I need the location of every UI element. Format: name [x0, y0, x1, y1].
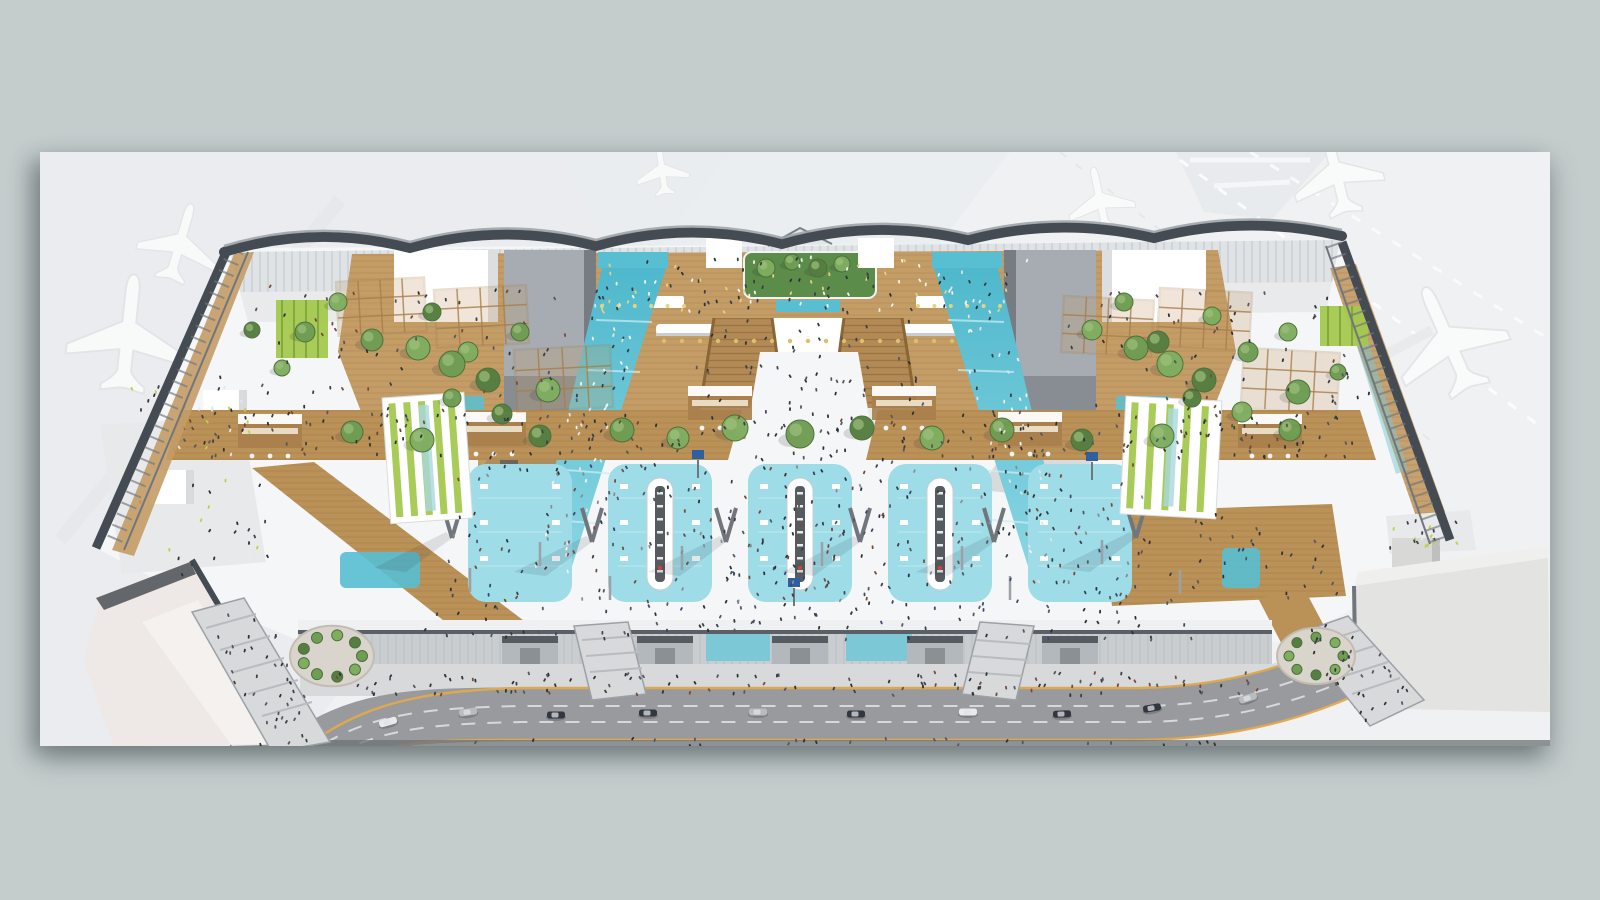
- person: [905, 603, 907, 607]
- person: [954, 565, 956, 569]
- person: [1181, 449, 1183, 453]
- person: [1184, 434, 1186, 438]
- person: [661, 443, 663, 447]
- car: [748, 709, 768, 719]
- person: [605, 497, 607, 501]
- green-roof-pavilion: [1120, 396, 1222, 519]
- landside-facade: [298, 620, 1272, 670]
- person: [376, 453, 378, 457]
- person: [789, 401, 791, 405]
- person: [286, 678, 288, 682]
- person: [1080, 694, 1082, 698]
- person: [772, 274, 774, 278]
- person: [215, 454, 217, 458]
- person: [1001, 431, 1003, 435]
- person: [223, 448, 225, 452]
- person: [852, 486, 854, 490]
- kiosk-pod: [1112, 520, 1120, 525]
- person: [1100, 691, 1102, 695]
- person: [684, 509, 686, 513]
- person: [934, 607, 936, 611]
- person: [843, 591, 845, 595]
- person: [1070, 495, 1072, 499]
- person: [995, 447, 997, 451]
- person: [879, 308, 881, 312]
- person: [248, 541, 250, 545]
- cafe-stool: [878, 339, 882, 343]
- person: [793, 451, 795, 455]
- person: [612, 543, 614, 547]
- person: [872, 285, 874, 289]
- person: [509, 352, 511, 356]
- person: [395, 299, 397, 303]
- kiosk-pod: [620, 520, 628, 525]
- flight-info-screen: [692, 450, 704, 459]
- kiosk-pod: [552, 520, 560, 525]
- person: [1210, 374, 1212, 378]
- person: [566, 514, 568, 518]
- person: [903, 448, 905, 452]
- person: [1206, 434, 1208, 438]
- person: [594, 419, 596, 423]
- cafe-stool: [680, 339, 684, 343]
- person: [278, 341, 280, 345]
- person: [602, 631, 604, 635]
- car: [546, 712, 566, 722]
- cafe-stool: [666, 304, 670, 308]
- person: [229, 651, 231, 655]
- person: [542, 607, 544, 611]
- person: [630, 607, 632, 611]
- person: [476, 540, 478, 544]
- person: [450, 588, 452, 592]
- flight-info-screen: [788, 578, 800, 587]
- person: [516, 682, 518, 686]
- person: [1099, 610, 1101, 614]
- person: [696, 366, 698, 370]
- person: [889, 504, 891, 508]
- person: [981, 495, 983, 499]
- kiosk-pod: [620, 556, 628, 561]
- person: [693, 529, 695, 533]
- person: [789, 407, 791, 411]
- person: [415, 337, 417, 341]
- person: [624, 414, 626, 418]
- person: [798, 264, 800, 268]
- person: [1069, 693, 1071, 697]
- person: [648, 292, 650, 296]
- terminal-building: [84, 219, 1550, 776]
- green-roof-pavilion: [382, 392, 473, 523]
- timber-pergola: [336, 277, 427, 336]
- car: [638, 710, 658, 720]
- timber-pergola: [514, 345, 613, 412]
- person: [1020, 427, 1022, 431]
- person: [1234, 453, 1236, 457]
- person: [844, 448, 846, 452]
- person: [737, 674, 739, 678]
- person: [1027, 424, 1029, 428]
- person: [1022, 426, 1024, 430]
- person: [1268, 444, 1270, 448]
- person: [1183, 683, 1185, 687]
- person: [667, 486, 669, 490]
- person: [753, 280, 755, 284]
- person: [864, 593, 866, 597]
- cafe-stool: [824, 339, 828, 343]
- person: [1348, 655, 1350, 659]
- person: [576, 394, 578, 398]
- person: [1389, 546, 1391, 550]
- person: [1243, 424, 1245, 428]
- person: [402, 437, 404, 441]
- kiosk-pod: [1040, 556, 1048, 561]
- person: [923, 559, 925, 563]
- person: [976, 386, 978, 390]
- person: [1010, 394, 1012, 398]
- cafe-stool: [682, 304, 686, 308]
- person: [1421, 537, 1423, 541]
- kiosk-pod: [480, 556, 488, 561]
- image-viewer-canvas: [0, 0, 1600, 900]
- person: [907, 540, 909, 544]
- person: [699, 278, 701, 282]
- terminal-aerial-rendering: [0, 0, 1600, 900]
- person: [454, 579, 456, 583]
- person: [942, 454, 944, 458]
- person: [1222, 575, 1224, 579]
- person: [1049, 473, 1051, 477]
- person: [724, 530, 726, 534]
- cafe-stool: [788, 339, 792, 343]
- person: [968, 315, 970, 319]
- person: [1259, 532, 1261, 536]
- kiosk-pod: [900, 520, 908, 525]
- person: [851, 417, 853, 421]
- person: [734, 628, 736, 632]
- person: [455, 416, 457, 420]
- person: [1025, 406, 1027, 410]
- kiosk-pod: [972, 520, 980, 525]
- person: [1087, 742, 1089, 746]
- person: [1096, 587, 1098, 591]
- person: [794, 616, 796, 620]
- person: [831, 528, 833, 532]
- person: [1071, 685, 1073, 689]
- kiosk-pod: [832, 484, 840, 489]
- person: [217, 435, 219, 439]
- person: [187, 559, 189, 563]
- person: [830, 377, 832, 381]
- cafe-stool: [806, 339, 810, 343]
- person: [1003, 400, 1005, 404]
- person: [1390, 674, 1392, 678]
- cafe-stool: [982, 304, 986, 308]
- person: [1138, 552, 1140, 556]
- person: [1029, 509, 1031, 513]
- person: [1177, 319, 1179, 323]
- person: [274, 725, 276, 729]
- person: [521, 422, 523, 426]
- person: [812, 412, 814, 416]
- person: [842, 308, 844, 312]
- person: [922, 685, 924, 689]
- person: [1199, 684, 1201, 688]
- person: [983, 608, 985, 612]
- kiosk-pod: [480, 484, 488, 489]
- person: [694, 738, 696, 742]
- kiosk-pod: [900, 484, 908, 489]
- kiosk-pod: [692, 484, 700, 489]
- person: [838, 504, 840, 508]
- person: [1200, 432, 1202, 436]
- person: [1031, 689, 1033, 693]
- person: [605, 610, 607, 614]
- person: [855, 338, 857, 342]
- person: [309, 423, 311, 427]
- person: [1087, 560, 1089, 564]
- person: [212, 439, 214, 443]
- cafe-stool: [770, 339, 774, 343]
- person: [616, 282, 618, 286]
- person: [264, 520, 266, 524]
- person: [594, 304, 596, 308]
- kiosk-pod: [1040, 484, 1048, 489]
- person: [748, 576, 750, 580]
- person: [551, 386, 553, 390]
- person: [472, 678, 474, 682]
- cafe-stool: [949, 304, 953, 308]
- person: [493, 346, 495, 350]
- person: [1365, 719, 1367, 723]
- car: [958, 709, 978, 719]
- person: [140, 408, 142, 412]
- person: [737, 258, 739, 262]
- person: [959, 605, 961, 609]
- person: [546, 689, 548, 693]
- cafe-stool: [649, 304, 653, 308]
- person: [748, 294, 750, 298]
- kiosk-pod: [760, 520, 768, 525]
- person: [180, 554, 182, 558]
- person: [704, 303, 706, 307]
- person: [1059, 564, 1061, 568]
- person: [872, 545, 874, 549]
- person: [244, 423, 246, 427]
- kiosk-pod: [900, 556, 908, 561]
- person: [567, 419, 569, 423]
- person: [1248, 339, 1250, 343]
- cafe-stool: [998, 304, 1002, 308]
- kiosk-pod: [1112, 556, 1120, 561]
- person: [286, 663, 288, 667]
- person: [1051, 558, 1053, 562]
- person: [550, 505, 552, 509]
- circular-planter: [290, 626, 374, 686]
- person: [376, 432, 378, 436]
- person: [1125, 595, 1127, 599]
- cafe-stool: [932, 304, 936, 308]
- cafe-stool: [860, 339, 864, 343]
- person: [505, 689, 507, 693]
- person: [155, 390, 157, 394]
- circular-planter: [1277, 628, 1355, 684]
- person: [367, 387, 369, 391]
- person: [476, 317, 478, 321]
- kiosk-pod: [692, 520, 700, 525]
- kiosk-pod: [760, 556, 768, 561]
- person: [1068, 580, 1070, 584]
- person: [667, 532, 669, 536]
- person: [1015, 485, 1017, 489]
- person: [1245, 557, 1247, 561]
- person: [778, 673, 780, 677]
- person: [389, 677, 391, 681]
- person: [868, 587, 870, 591]
- person: [576, 426, 578, 430]
- person: [641, 547, 643, 551]
- person: [836, 489, 838, 493]
- cafe-stool: [932, 339, 936, 343]
- cafe-stool: [914, 339, 918, 343]
- person: [368, 436, 370, 440]
- cafe-stool: [633, 304, 637, 308]
- person: [1421, 531, 1423, 535]
- person: [458, 301, 460, 305]
- person: [488, 593, 490, 597]
- kiosk-pod: [972, 484, 980, 489]
- person: [326, 410, 328, 414]
- person: [803, 456, 805, 460]
- person: [1183, 623, 1185, 627]
- person: [266, 721, 268, 725]
- person: [247, 420, 249, 424]
- cafe-stool: [734, 339, 738, 343]
- person: [224, 479, 226, 483]
- person: [800, 405, 802, 409]
- person: [738, 573, 740, 577]
- person: [814, 562, 816, 566]
- person: [1224, 561, 1226, 565]
- person: [1034, 449, 1036, 453]
- person: [609, 272, 611, 276]
- person: [579, 467, 581, 471]
- person: [1025, 393, 1027, 397]
- cafe-stool: [716, 339, 720, 343]
- person: [341, 348, 343, 352]
- person: [931, 444, 933, 448]
- person: [581, 597, 583, 601]
- person: [1245, 433, 1247, 437]
- person: [305, 442, 307, 446]
- person: [168, 548, 170, 552]
- person: [765, 410, 767, 414]
- flight-info-screen: [1086, 452, 1098, 461]
- car: [846, 711, 866, 721]
- person: [1296, 442, 1298, 446]
- kiosk-pod: [480, 520, 488, 525]
- person: [591, 316, 593, 320]
- cafe-stool: [950, 339, 954, 343]
- person: [356, 440, 358, 444]
- person: [666, 629, 668, 633]
- kiosk-pod: [1112, 484, 1120, 489]
- person: [750, 300, 752, 304]
- person: [303, 405, 305, 409]
- kiosk-pod: [552, 484, 560, 489]
- person: [822, 446, 824, 450]
- person: [331, 322, 333, 326]
- person: [1285, 592, 1287, 596]
- person: [483, 390, 485, 394]
- person: [864, 388, 866, 392]
- person: [644, 280, 646, 284]
- cafe-stool: [662, 339, 666, 343]
- person: [248, 635, 250, 639]
- kiosk-pod: [760, 484, 768, 489]
- person: [1183, 397, 1185, 401]
- cafe-stool: [896, 339, 900, 343]
- person: [698, 279, 700, 283]
- person: [1005, 470, 1007, 474]
- person: [988, 455, 990, 459]
- person: [1036, 454, 1038, 458]
- person: [1334, 668, 1336, 672]
- cafe-stool: [698, 339, 702, 343]
- kiosk-pod: [620, 484, 628, 489]
- person: [1022, 741, 1024, 745]
- person: [275, 634, 277, 638]
- person: [1079, 680, 1081, 684]
- cafe-stool: [916, 304, 920, 308]
- cafe-stool: [752, 339, 756, 343]
- person: [286, 360, 288, 364]
